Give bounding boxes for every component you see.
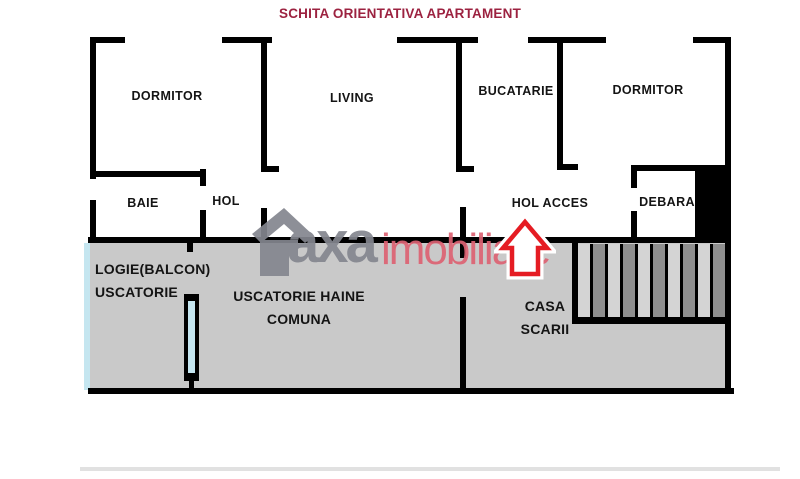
wall-segment	[456, 166, 474, 172]
window-symbol	[184, 294, 199, 381]
room-label-baie: BAIE	[127, 196, 158, 210]
stair-step	[668, 244, 680, 317]
uscatorie-line1: USCATORIE HAINE	[233, 285, 365, 308]
wall-segment	[261, 166, 279, 172]
wall-segment	[200, 169, 206, 186]
wall-segment	[397, 37, 478, 43]
room-label-casa-scarii: CASA SCARII	[521, 295, 570, 341]
staircase-treads	[578, 244, 725, 317]
shaft-block	[695, 165, 731, 240]
wall-segment	[261, 37, 267, 172]
wall-segment	[90, 171, 206, 177]
casa-line2: SCARII	[521, 318, 570, 341]
room-label-dormitor-left: DORMITOR	[131, 89, 202, 103]
balcony-window-strip	[84, 243, 90, 390]
wall-segment	[460, 207, 466, 258]
stair-step	[698, 244, 710, 317]
floor-plan: SCHITA ORIENTATIVA APARTAMENT DORMITOR L…	[0, 0, 800, 479]
wall-segment	[90, 37, 96, 179]
stair-step	[713, 244, 725, 317]
room-label-hol: HOL	[212, 194, 240, 208]
stair-step	[653, 244, 665, 317]
wall-segment	[456, 37, 462, 172]
casa-line1: CASA	[521, 295, 570, 318]
wall-segment	[557, 37, 563, 170]
room-label-debara: DEBARA	[639, 195, 695, 209]
stair-step	[638, 244, 650, 317]
stair-step	[578, 244, 590, 317]
wall-segment	[528, 37, 606, 43]
entrance-arrow-icon	[494, 216, 556, 280]
logie-line2: USCATORIE	[95, 281, 210, 304]
stair-step	[683, 244, 695, 317]
wall-segment	[631, 165, 637, 188]
wall-segment	[460, 297, 466, 390]
room-label-dormitor-right: DORMITOR	[612, 83, 683, 97]
stair-step	[623, 244, 635, 317]
wall-segment	[88, 388, 734, 394]
room-label-living: LIVING	[330, 91, 374, 105]
logie-line1: LOGIE(BALCON)	[95, 258, 210, 281]
room-label-bucatarie: BUCATARIE	[478, 84, 553, 98]
wall-segment	[557, 164, 578, 170]
wall-segment	[88, 237, 731, 243]
window-pane	[188, 301, 195, 373]
page-title: SCHITA ORIENTATIVA APARTAMENT	[279, 6, 521, 21]
wall-segment	[187, 243, 193, 252]
scan-artifact-line	[80, 467, 780, 471]
room-label-logie: LOGIE(BALCON) USCATORIE	[95, 258, 210, 304]
stairs-bottom-wall	[572, 317, 731, 324]
room-label-uscatorie-comuna: USCATORIE HAINE COMUNA	[233, 285, 365, 331]
stair-step	[608, 244, 620, 317]
wall-segment	[631, 165, 695, 171]
room-label-hol-acces: HOL ACCES	[512, 196, 589, 210]
stair-step	[593, 244, 605, 317]
uscatorie-line2: COMUNA	[233, 308, 365, 331]
